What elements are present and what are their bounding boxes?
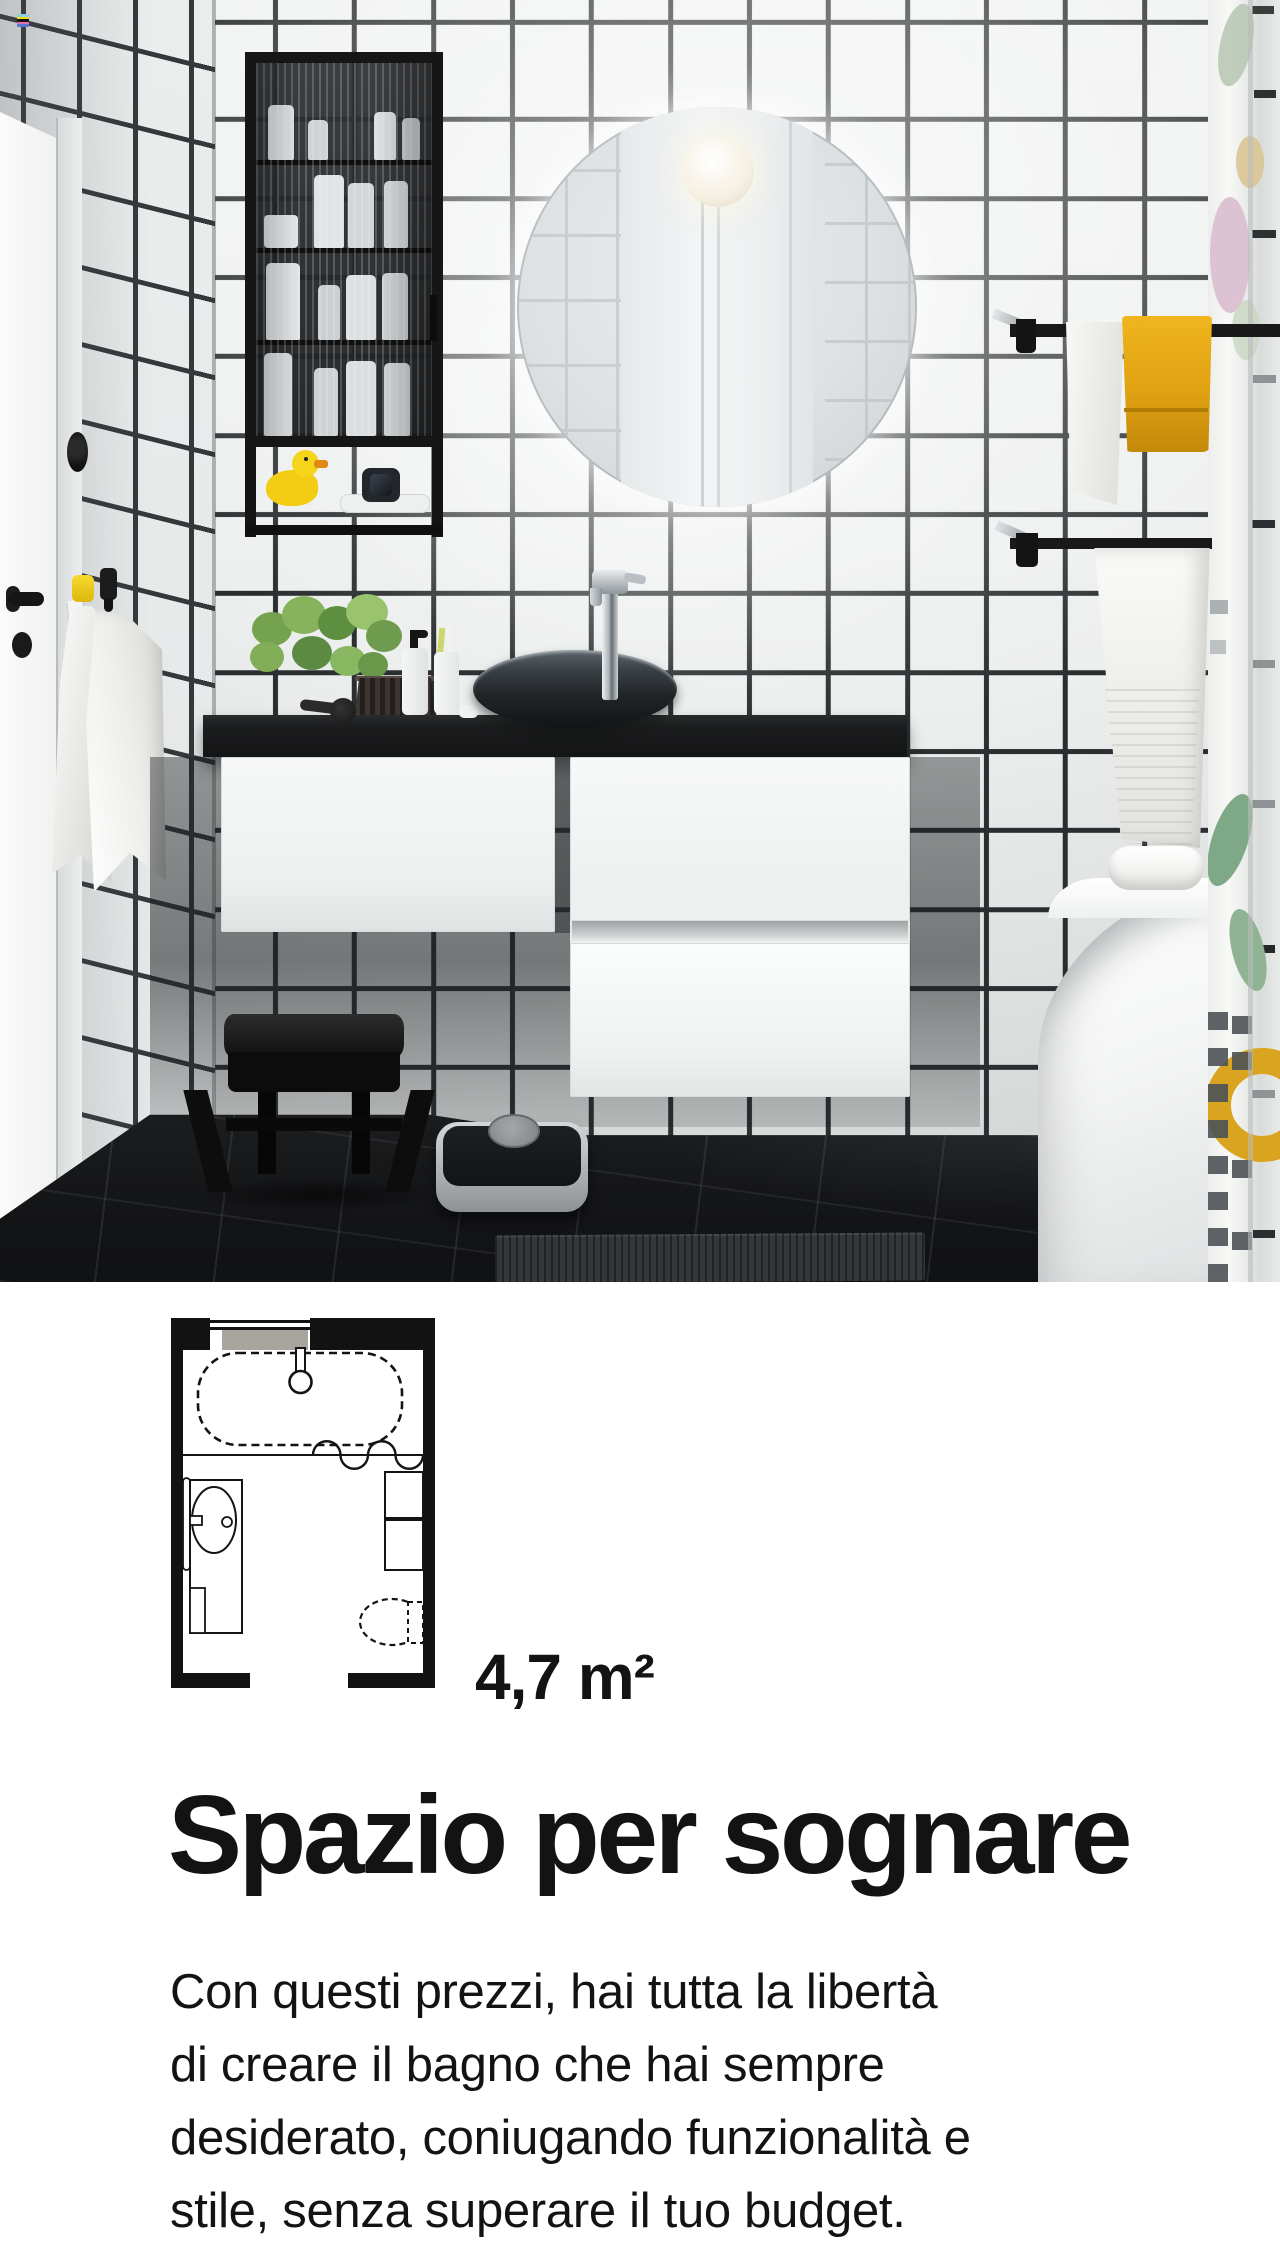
watch-face — [370, 474, 392, 496]
yellow-towel — [1122, 316, 1212, 452]
white-towel-upper — [1066, 322, 1124, 505]
brush-head — [330, 698, 356, 724]
stool-leg-rear — [352, 1090, 370, 1174]
faucet-spout — [590, 588, 602, 606]
black-hook-tip — [104, 598, 113, 612]
sphere-lamp — [682, 135, 754, 207]
stool-crossbar — [226, 1118, 402, 1131]
open-shelf-post — [432, 447, 443, 537]
mirror-panel-groove — [789, 107, 792, 507]
rail-bracket — [1016, 319, 1036, 353]
bathroom-photo — [0, 0, 1280, 1282]
towel-rail-lower — [1010, 538, 1212, 549]
bathroom-scale — [436, 1122, 588, 1212]
round-mirror — [517, 107, 917, 507]
mirror-tile-reflection — [825, 107, 917, 507]
paragraph-line: desiderato, coniugando funzionalità e — [170, 2102, 1130, 2175]
rubber-duck-eye — [304, 457, 308, 461]
vanity-gap — [555, 757, 570, 933]
toothbrush-cup — [434, 652, 459, 714]
vanity-cabinet-left — [221, 757, 555, 932]
bath-mat-ribs — [495, 1232, 925, 1282]
glass-vessel-sink — [473, 650, 677, 728]
yellow-towel-fold — [1124, 408, 1208, 412]
paragraph-line: stile, senza superare il tuo budget. — [170, 2175, 1130, 2248]
bath-mat — [495, 1232, 925, 1282]
wall-disc-accessory — [67, 432, 88, 472]
door-handle — [8, 592, 44, 606]
vanity-cabinet-right — [570, 757, 910, 1097]
open-shelf-board — [245, 525, 443, 535]
open-shelf-post — [245, 447, 256, 537]
area-label: 4,7 m² — [475, 1640, 654, 1714]
vanity-drawer-bottom — [570, 943, 910, 1097]
plant-leaf — [366, 620, 402, 652]
drawer-handle-recess — [572, 921, 908, 943]
soap-dispenser — [402, 648, 428, 715]
scale-dial — [488, 1114, 540, 1148]
soap-dish — [459, 705, 478, 718]
step-stool-front — [228, 1052, 400, 1092]
vanity-drawer-top — [570, 757, 910, 921]
yellow-hook — [72, 575, 94, 602]
plant-leaf — [358, 652, 388, 678]
floor-plan — [171, 1318, 435, 1688]
towel-texture — [1100, 680, 1204, 848]
rolled-towel — [1108, 846, 1204, 890]
page-title: Spazio per sognare — [168, 1780, 1268, 1891]
door-lock-knob — [12, 632, 32, 658]
catalog-page: 4,7 m² Spazio per sognare Con questi pre… — [0, 0, 1280, 2255]
rubber-duck-beak — [314, 460, 328, 468]
color-glitch-icon — [17, 14, 29, 27]
glass-cabinet — [245, 52, 443, 447]
shower-curtain — [1208, 0, 1280, 1282]
rail-bracket — [1016, 533, 1038, 567]
intro-paragraph: Con questi prezzi, hai tutta la libertà … — [170, 1956, 1130, 2248]
watch — [362, 468, 400, 502]
soap-pump-spout — [410, 630, 428, 638]
paragraph-line: di creare il bagno che hai sempre — [170, 2029, 1130, 2102]
paragraph-line: Con questi prezzi, hai tutta la libertà — [170, 1956, 1130, 2029]
black-hook — [100, 568, 117, 600]
faucet — [602, 578, 618, 700]
stool-leg-rear — [258, 1090, 276, 1174]
cabinet-handle — [430, 295, 437, 341]
plant-leaf — [250, 642, 284, 672]
cabinet-shading — [256, 63, 432, 436]
plant-leaf — [292, 636, 332, 670]
curtain-pattern — [1208, 0, 1280, 1282]
mirror-tile-reflection — [517, 107, 621, 507]
